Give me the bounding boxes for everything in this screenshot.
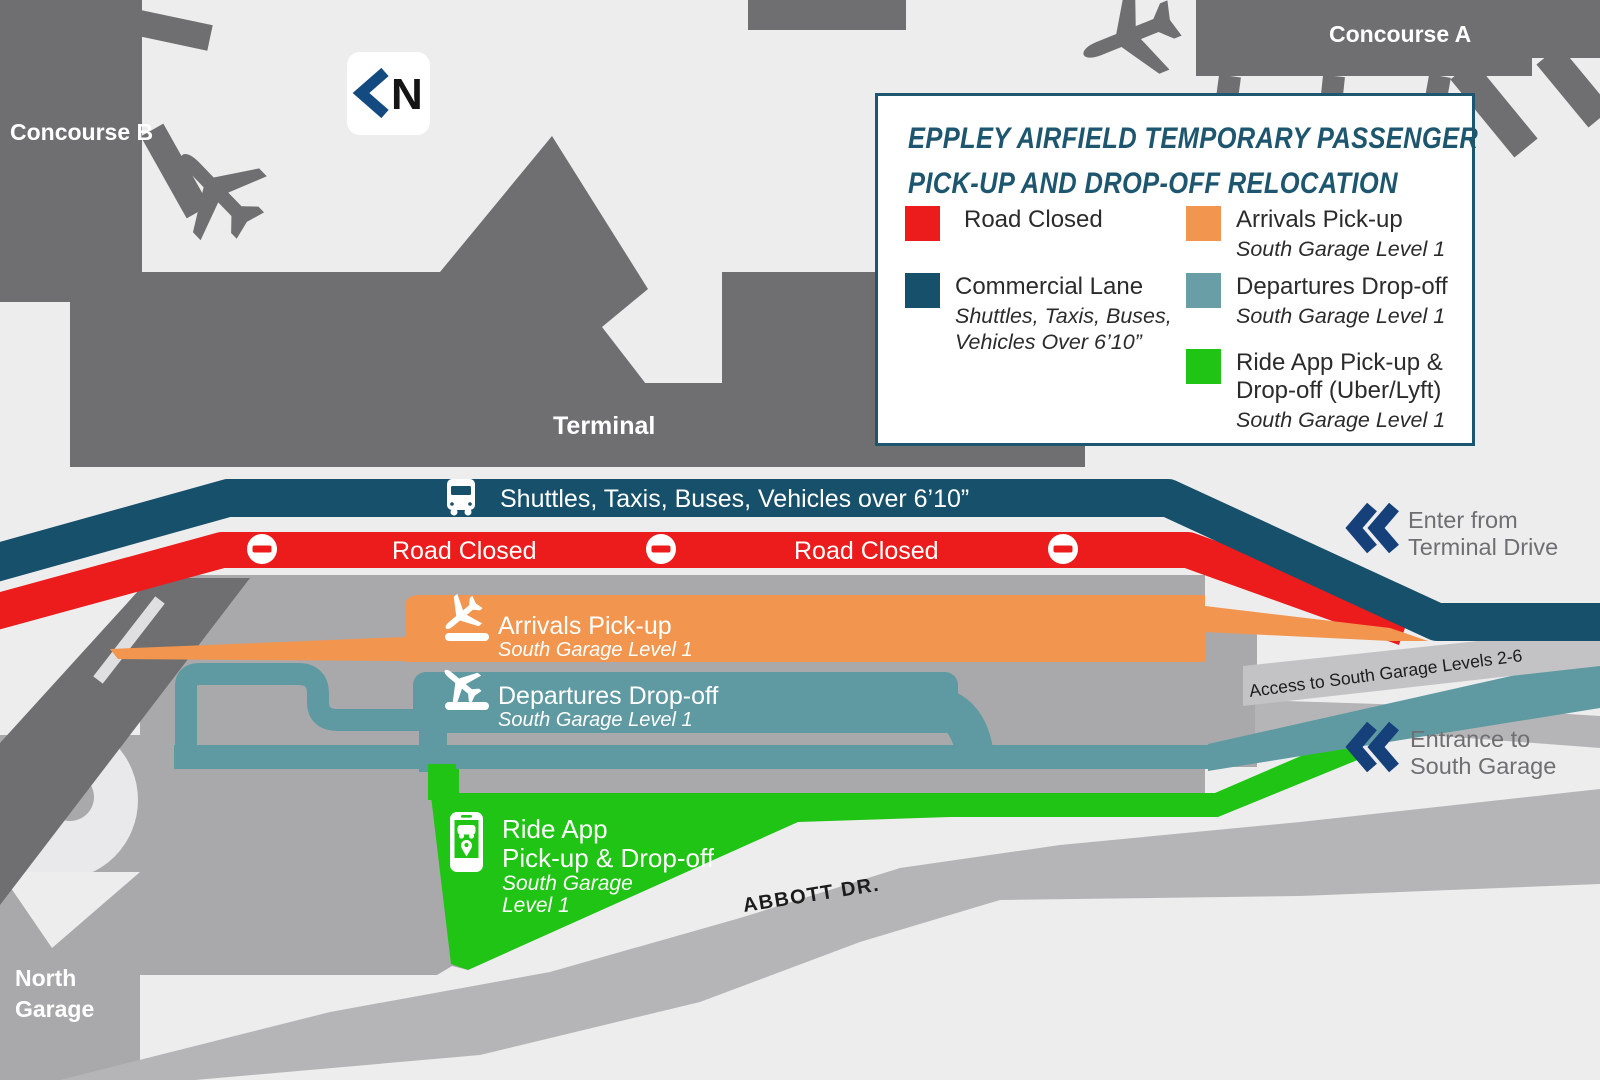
- road-closed-swatch: [905, 206, 940, 241]
- no-entry-icon: [247, 534, 277, 564]
- road-closed-label: Road Closed: [392, 537, 537, 565]
- north-letter: N: [391, 70, 423, 119]
- no-entry-icon: [646, 534, 676, 564]
- ride-app-phone-icon: [450, 812, 483, 872]
- no-entry-icon: [1048, 534, 1078, 564]
- concourse-b-building: [0, 0, 142, 302]
- legend-item-ride-app: Ride App Pick-up & Drop-off (Uber/Lyft) …: [1186, 349, 1454, 433]
- legend-label: Arrivals Pick-up: [1236, 206, 1466, 234]
- legend-item-departures: Departures Drop-off South Garage Level 1: [1186, 273, 1476, 329]
- legend-sublabel: South Garage Level 1: [1236, 303, 1476, 329]
- legend-label: Road Closed: [964, 206, 1103, 234]
- enter-label-2: Terminal Drive: [1408, 534, 1558, 560]
- arrivals-swatch: [1186, 206, 1221, 241]
- legend-sublabel: South Garage Level 1: [1236, 236, 1466, 262]
- ride-app-sublabel-2: Level 1: [502, 894, 570, 917]
- north-indicator: N: [347, 52, 430, 135]
- road-closed-label: Road Closed: [794, 537, 939, 565]
- legend-sublabel: Shuttles, Taxis, Buses, Vehicles Over 6’…: [955, 303, 1207, 355]
- departures-sublabel: South Garage Level 1: [498, 709, 693, 731]
- arrivals-sublabel: South Garage Level 1: [498, 639, 693, 661]
- legend-item-commercial-lane: Commercial Lane Shuttles, Taxis, Buses, …: [905, 273, 1207, 356]
- ride-app-ramp: [428, 764, 456, 800]
- legend-panel: EPPLEY AIRFIELD TEMPORARY PASSENGER PICK…: [875, 93, 1475, 446]
- commercial-lane-swatch: [905, 273, 940, 308]
- enter-label-1: Enter from: [1408, 507, 1518, 533]
- legend-title: EPPLEY AIRFIELD TEMPORARY PASSENGER PICK…: [908, 116, 1478, 206]
- terminal-label: Terminal: [553, 412, 655, 440]
- ride-app-label-1: Ride App: [502, 814, 608, 844]
- legend-label: Commercial Lane: [955, 273, 1207, 301]
- legend-label: Ride App Pick-up & Drop-off (Uber/Lyft): [1236, 349, 1454, 405]
- entrance-label-2: South Garage: [1410, 753, 1556, 779]
- legend-item-arrivals: Arrivals Pick-up South Garage Level 1: [1186, 206, 1466, 262]
- ride-app-sublabel-1: South Garage: [502, 872, 633, 895]
- north-garage-label-1: North: [15, 965, 76, 991]
- terminal-north-pier: [748, 0, 906, 30]
- legend-label: Departures Drop-off: [1236, 273, 1476, 301]
- ride-app-swatch: [1186, 349, 1221, 384]
- ride-app-label-2: Pick-up & Drop-off: [502, 843, 715, 873]
- north-garage-label-2: Garage: [15, 996, 94, 1022]
- eppley-relocation-map: N Concourse B Concourse A Terminal Shutt…: [0, 0, 1600, 1080]
- legend-title-line1: EPPLEY AIRFIELD TEMPORARY PASSENGER: [908, 116, 1478, 161]
- entrance-label-1: Entrance to: [1410, 726, 1530, 752]
- legend-sublabel: South Garage Level 1: [1236, 407, 1454, 433]
- commercial-lane-label: Shuttles, Taxis, Buses, Vehicles over 6’…: [500, 485, 969, 513]
- concourse-b-label: Concourse B: [10, 119, 153, 145]
- legend-item-road-closed: Road Closed: [905, 206, 1103, 241]
- departures-label: Departures Drop-off: [498, 682, 719, 710]
- departures-swatch: [1186, 273, 1221, 308]
- concourse-a-label: Concourse A: [1329, 21, 1471, 47]
- legend-title-line2: PICK-UP AND DROP-OFF RELOCATION: [908, 161, 1478, 206]
- concourse-a-east-block: [1530, 0, 1600, 58]
- arrivals-label: Arrivals Pick-up: [498, 612, 672, 640]
